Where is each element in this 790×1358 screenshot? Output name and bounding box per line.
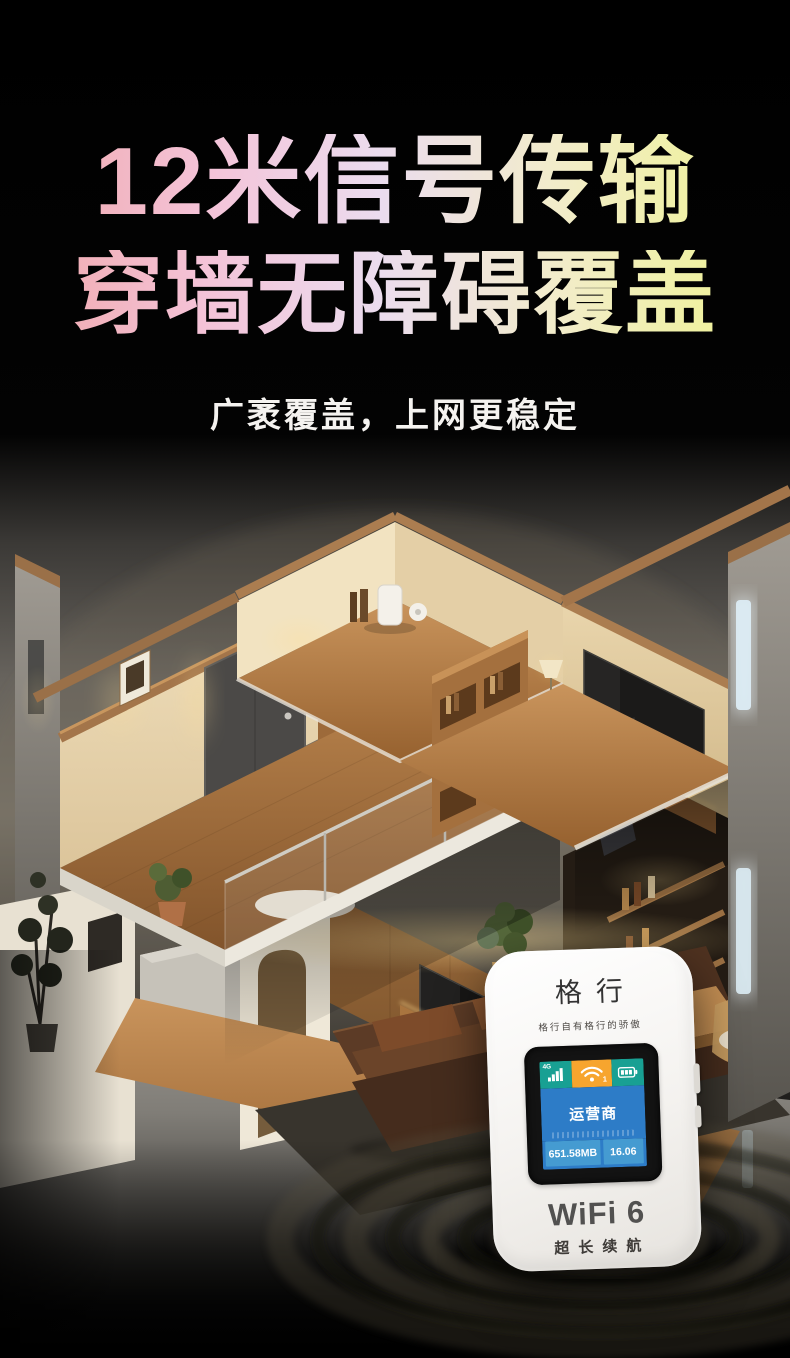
right-outer-wall — [728, 522, 790, 1188]
clock-time: 16.06 — [603, 1138, 644, 1164]
ticker-strip — [552, 1130, 635, 1139]
device-brand: 格行 — [484, 966, 693, 1012]
wifi6-label: WiFi 6 — [492, 1192, 701, 1235]
device-screen: 4G 1 — [539, 1058, 647, 1170]
battery-life-label: 超长续航 — [493, 1232, 702, 1260]
status-bar: 4G 1 — [539, 1058, 644, 1089]
battery-cell — [611, 1058, 644, 1086]
side-button-lower — [695, 1105, 702, 1127]
product-banner: 12米信号传输 穿墙无障碍覆盖 广袤覆盖，上网更稳定 格行 格行自有格行的骄傲 … — [0, 0, 790, 1358]
window-glow-lower — [736, 868, 751, 994]
hero-subtitle: 广袤覆盖，上网更稳定 — [0, 388, 790, 437]
network-badge: 4G — [542, 1063, 551, 1070]
wifi-cell: 1 — [571, 1059, 612, 1087]
carrier-area: 运营商 — [540, 1085, 646, 1142]
window-glow-upper — [736, 600, 751, 710]
network-cell: 4G — [539, 1061, 572, 1089]
hero-title-line2: 穿墙无障碍覆盖 — [0, 250, 790, 340]
wifi-icon — [580, 1065, 603, 1082]
wifi-device: 格行 格行自有格行的骄傲 4G — [483, 945, 702, 1272]
device-screen-bezel: 4G 1 — [524, 1043, 663, 1186]
wifi-badge: 1 — [603, 1074, 607, 1083]
side-button-upper — [693, 1063, 700, 1093]
hero-title-line1: 12米信号传输 — [0, 134, 790, 230]
data-usage: 651.58MB — [545, 1140, 600, 1167]
screen-footer: 651.58MB 16.06 — [542, 1138, 647, 1170]
carrier-name: 运营商 — [569, 1102, 618, 1125]
battery-icon — [618, 1066, 638, 1078]
device-slogan: 格行自有格行的骄傲 — [486, 1014, 694, 1035]
